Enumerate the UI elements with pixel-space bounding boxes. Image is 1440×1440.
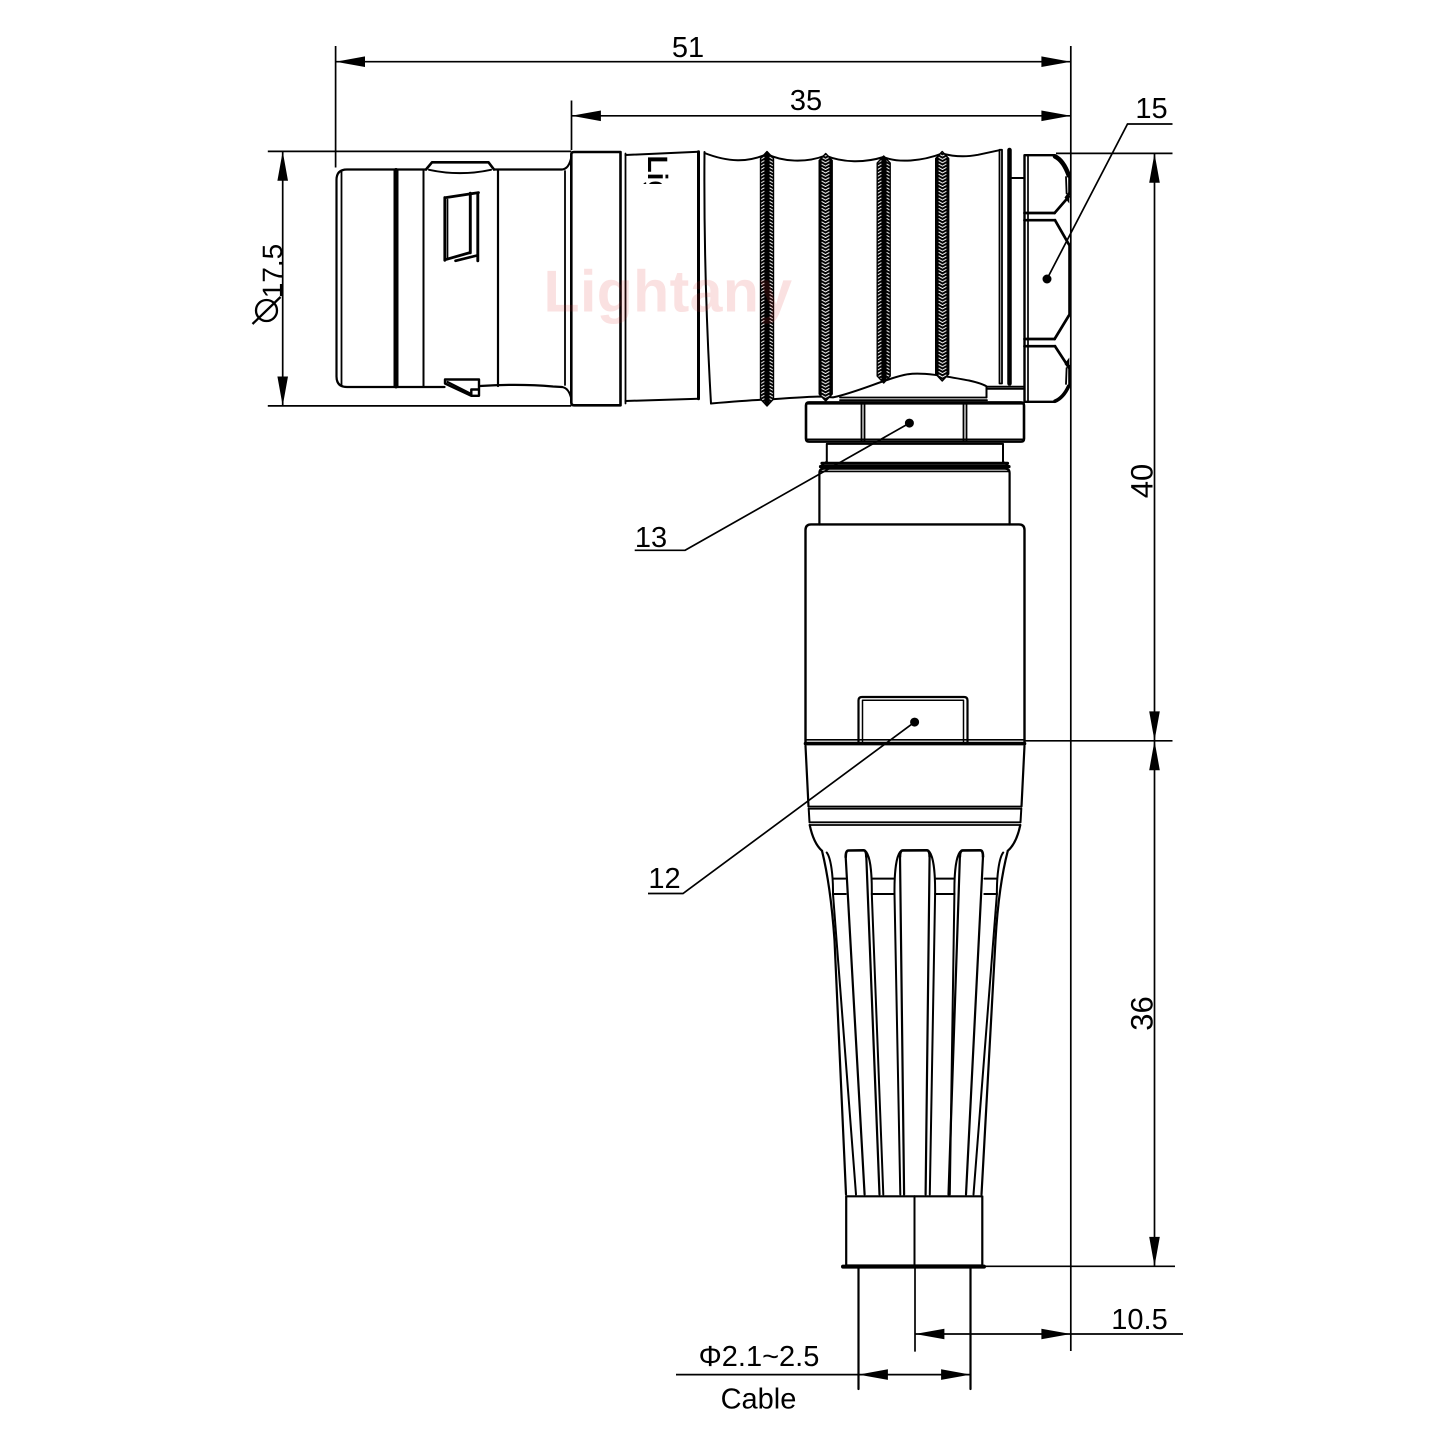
svg-text:36: 36 xyxy=(1125,996,1160,1030)
svg-text:Φ2.1~2.5: Φ2.1~2.5 xyxy=(699,1341,820,1373)
svg-text:40: 40 xyxy=(1125,464,1160,498)
svg-text:12: 12 xyxy=(648,863,680,895)
svg-text:35: 35 xyxy=(790,85,822,117)
svg-text:Cable: Cable xyxy=(721,1384,797,1416)
svg-text:Lightany: Lightany xyxy=(544,259,793,325)
svg-text:17.5: 17.5 xyxy=(257,244,288,299)
svg-text:10.5: 10.5 xyxy=(1111,1304,1167,1336)
svg-text:13: 13 xyxy=(635,522,667,554)
svg-text:15: 15 xyxy=(1135,93,1167,125)
svg-text:51: 51 xyxy=(672,32,704,64)
